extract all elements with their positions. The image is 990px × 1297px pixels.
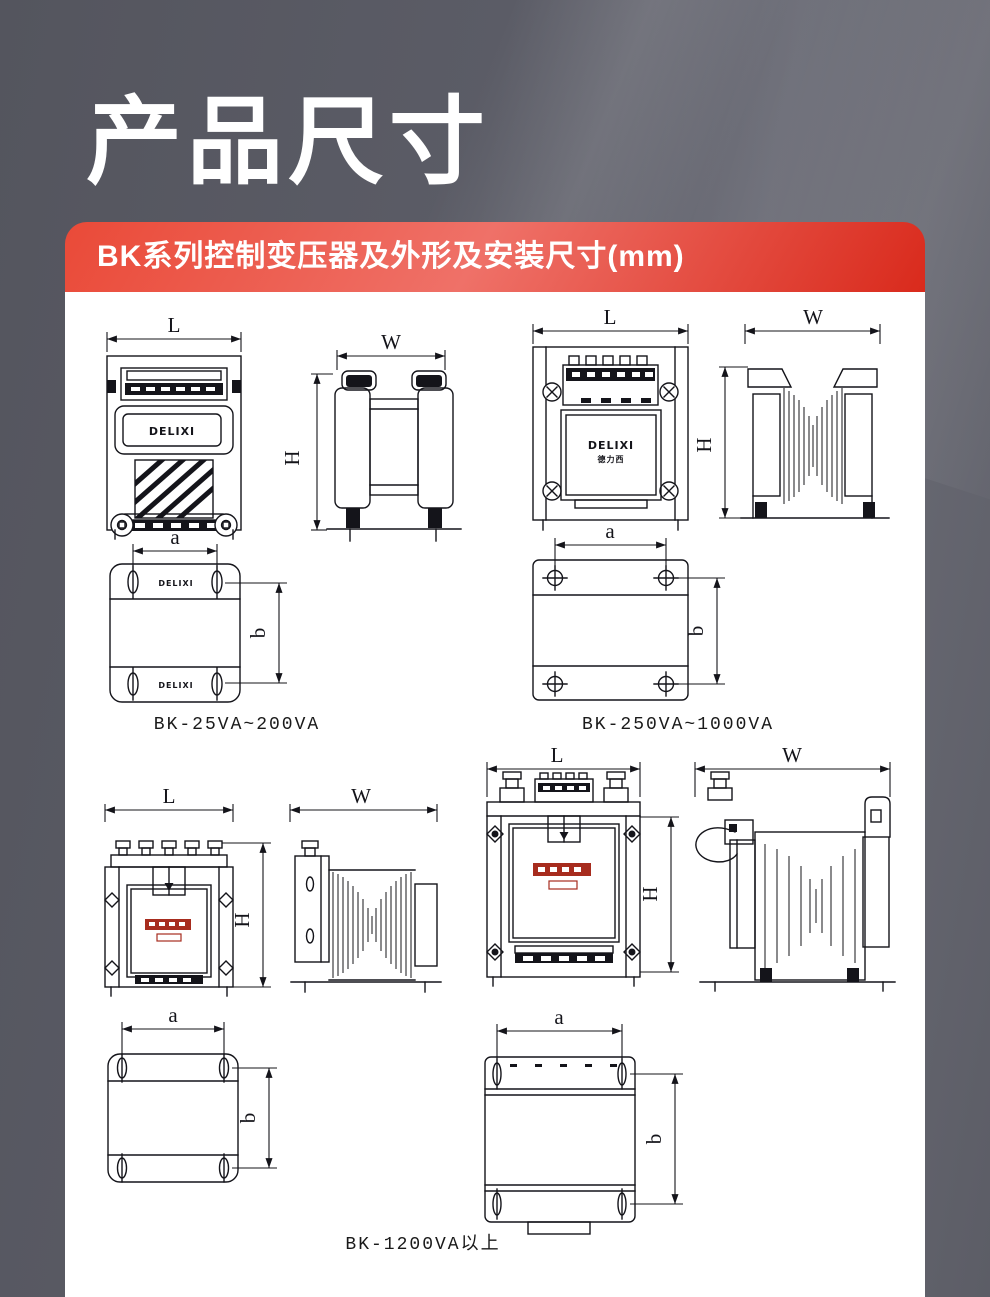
corner-screw-icon xyxy=(487,826,640,960)
brand-mark: DELIXI xyxy=(149,425,195,438)
dim-label-H: H xyxy=(230,912,254,927)
dim-label-a: a xyxy=(170,525,180,549)
screw-icon xyxy=(543,482,561,500)
screw-icon xyxy=(660,482,678,500)
brand-label-red xyxy=(533,863,591,889)
terminal-marks xyxy=(581,398,651,403)
dim-label-b: b xyxy=(642,1134,666,1145)
dim-label-a: a xyxy=(554,1005,564,1029)
dim-label-H: H xyxy=(638,886,662,901)
dim-label-L: L xyxy=(551,743,564,767)
brand-mark: DELIXI xyxy=(158,579,193,588)
bottom-view-large-a: a b xyxy=(108,1003,277,1182)
coil-winding-lines xyxy=(333,872,411,978)
dim-label-W: W xyxy=(381,330,401,354)
brand-label-red xyxy=(145,919,191,941)
dim-label-L: L xyxy=(163,784,176,808)
dim-label-L: L xyxy=(168,313,181,337)
caption-medium: BK-250VA~1000VA xyxy=(582,715,774,735)
screw-icon xyxy=(660,383,678,401)
drawing-group-small: L DELIXI xyxy=(87,313,461,735)
dim-label-a: a xyxy=(605,519,615,543)
drawing-group-medium: L xyxy=(533,305,889,735)
mounting-hole-icon xyxy=(118,1054,229,1182)
front-view-medium: L xyxy=(533,305,688,530)
terminal-bolts xyxy=(116,841,222,855)
dim-label-L: L xyxy=(604,305,617,329)
dim-label-H: H xyxy=(692,437,716,452)
coil-winding-lines xyxy=(765,844,855,968)
drawing-group-large: L xyxy=(105,743,895,1255)
side-view-large-a: W xyxy=(290,784,441,992)
dim-label-W: W xyxy=(803,305,823,329)
bottom-view-small: a b DELIXI DELIXI xyxy=(110,525,287,702)
bottom-view-medium: a b xyxy=(533,519,725,700)
side-view-small: W H xyxy=(280,330,461,541)
dim-label-b: b xyxy=(246,628,270,639)
front-view-small: L DELIXI xyxy=(87,313,243,550)
terminal-teeth xyxy=(540,773,587,779)
dimension-drawings-canvas: L DELIXI xyxy=(65,292,925,1297)
plate-dashes xyxy=(510,1064,617,1067)
bottom-view-large-b: a b xyxy=(485,1005,683,1234)
dim-label-b: b xyxy=(236,1113,260,1124)
front-view-large-b: L xyxy=(487,743,679,986)
caption-small: BK-25VA~200VA xyxy=(154,715,320,735)
terminal-teeth xyxy=(569,356,647,365)
dim-label-W: W xyxy=(351,784,371,808)
banner-title: BK系列控制变压器及外形及安装尺寸(mm) xyxy=(65,222,925,292)
side-view-medium: W H xyxy=(692,305,889,518)
wire-loop xyxy=(696,828,737,862)
caption-large: BK-1200VA以上 xyxy=(345,1233,500,1255)
brand-mark: DELIXI xyxy=(158,681,193,690)
side-view-large-b: W xyxy=(695,743,895,991)
front-view-large-a: L xyxy=(105,784,271,996)
brand-mark: DELIXI xyxy=(588,439,634,452)
dim-label-a: a xyxy=(168,1003,178,1027)
mounting-hole-icon xyxy=(543,566,678,696)
section-banner: BK系列控制变压器及外形及安装尺寸(mm) xyxy=(65,222,925,292)
page-title: 产品尺寸 xyxy=(86,64,490,203)
brand-mark-cn: 德力西 xyxy=(598,454,625,464)
mounting-hole-icon xyxy=(493,1059,626,1219)
coil-winding-lines xyxy=(784,388,842,504)
screw-icon xyxy=(543,383,561,401)
content-panel: L DELIXI xyxy=(65,292,925,1297)
dim-label-H: H xyxy=(280,450,304,465)
dim-label-W: W xyxy=(782,743,802,767)
